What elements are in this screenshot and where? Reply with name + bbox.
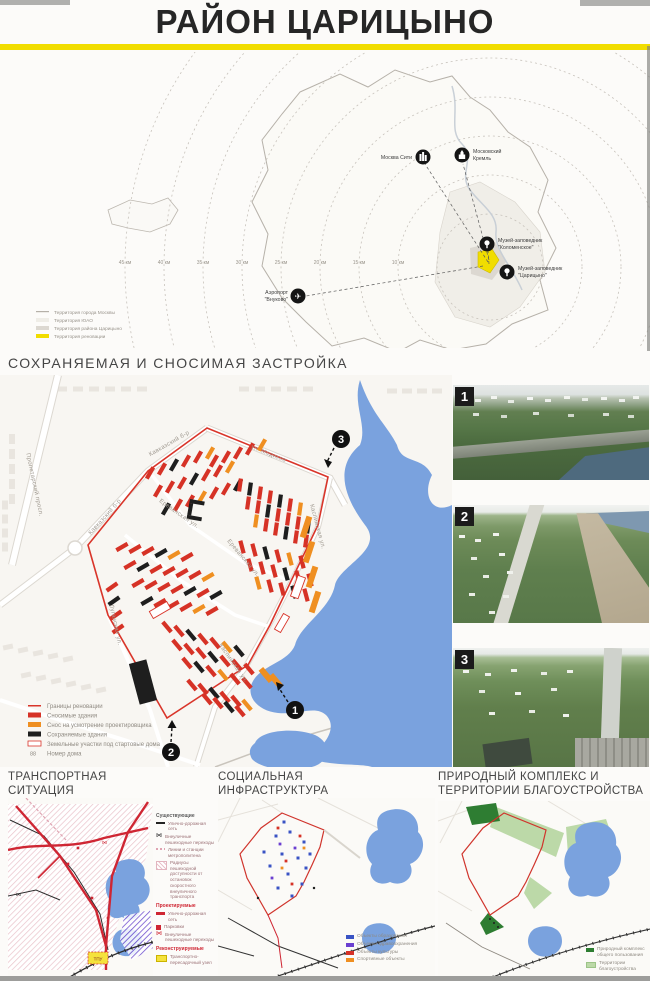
background-building xyxy=(137,387,147,392)
background-building xyxy=(2,501,8,510)
background-building xyxy=(432,389,442,394)
poi-label: Московский xyxy=(473,148,502,155)
facility-dot xyxy=(297,857,300,860)
nature-map-block: Природный комплекс общего пользования Те… xyxy=(438,801,650,978)
background-building xyxy=(9,479,15,489)
nature-title-line1: ПРИРОДНЫЙ КОМПЛЕКС И xyxy=(438,770,650,784)
legend-header: Существующие xyxy=(156,813,216,819)
legend-header: Реконструируемые xyxy=(156,946,216,952)
photo-1: 1 xyxy=(453,385,649,480)
yellow-divider xyxy=(0,44,650,50)
legend-label: Границы реновации xyxy=(47,704,103,710)
facility-dot xyxy=(257,897,259,899)
pond-lower xyxy=(528,926,562,956)
facility-dot xyxy=(303,847,306,850)
sport-swatch xyxy=(346,958,354,962)
facility-dot xyxy=(77,847,80,850)
poi-label: Аэропорт xyxy=(265,290,288,296)
background-building xyxy=(89,387,99,392)
legend-label: Спортивные объекты xyxy=(357,957,405,963)
background-building xyxy=(73,387,83,392)
legend-label: Транспортно-пересадочный узел xyxy=(170,954,216,965)
background-building xyxy=(255,387,265,392)
legend-label: Объекты образования xyxy=(357,934,407,940)
facility-dot xyxy=(303,841,306,844)
facility-dot xyxy=(291,895,294,898)
legend-label: Внеуличные пешеходные переходы xyxy=(165,834,216,845)
facility-dot xyxy=(277,887,280,890)
background-building xyxy=(271,387,281,392)
photo-edge xyxy=(0,976,650,981)
improvement-swatch xyxy=(586,962,596,968)
background-building xyxy=(303,387,313,392)
facility-dot xyxy=(277,827,280,830)
facility-dot xyxy=(283,821,286,824)
distance-label: 10 км xyxy=(392,260,405,266)
facility-dot xyxy=(269,865,272,868)
crossing-icon: ⋈ xyxy=(102,840,107,846)
nature-title-line2: ТЕРРИТОРИИ БЛАГОУСТРОЙСТВА xyxy=(438,784,650,798)
poi-label: Музей-заповедник xyxy=(518,265,563,272)
facility-dot xyxy=(271,877,274,880)
poi-label: "Коломенское" xyxy=(498,245,534,251)
distance-label: 30 км xyxy=(236,260,249,266)
facility-dot xyxy=(289,831,292,834)
distance-label: 40 км xyxy=(158,260,171,266)
social-map-block: Объекты образования Объекты здравоохране… xyxy=(218,798,435,978)
facility-dot xyxy=(275,835,278,838)
road-swatch xyxy=(156,822,165,825)
photo-3: 3 xyxy=(453,648,649,767)
crossing-icon: ⋈ xyxy=(156,834,162,839)
background-building xyxy=(417,389,427,394)
facility-dot xyxy=(67,863,70,866)
crossing-icon: ⋈ xyxy=(16,892,21,898)
facility-dot xyxy=(291,883,294,886)
house-number-swatch: 88 xyxy=(30,752,36,758)
building-specks xyxy=(463,670,469,673)
facility-dot xyxy=(285,860,288,863)
social-legend: Объекты образования Объекты здравоохране… xyxy=(346,934,432,965)
background-building xyxy=(387,389,397,394)
background-building xyxy=(121,387,131,392)
parking-swatch xyxy=(156,925,161,930)
facility-dot xyxy=(313,887,315,889)
tpu-swatch xyxy=(156,955,167,962)
road-swatch xyxy=(156,912,165,915)
legend-label: Природный комплекс общего пользования xyxy=(597,947,648,959)
facility-dot xyxy=(263,851,266,854)
background-building xyxy=(239,387,249,392)
legend-label: Внеуличные пешеходные переходы xyxy=(165,932,216,943)
transport-title: ТРАНСПОРТНАЯ СИТУАЦИЯ xyxy=(8,770,208,798)
radius-swatch xyxy=(156,861,167,870)
background-building xyxy=(287,387,297,392)
facility-dot xyxy=(281,853,284,856)
legend-label: Объекты здравоохранения xyxy=(357,942,417,948)
legend-label: Снос на усмотрение проектировщика xyxy=(47,723,152,729)
nature-complex-swatch xyxy=(586,948,594,952)
poi-label: Музей-заповедник xyxy=(498,237,543,244)
dark-lot xyxy=(483,738,533,767)
legend-label: Радиусы пешеходной доступности от остано… xyxy=(170,860,216,900)
tpu-label: ТПУ xyxy=(94,957,103,962)
photo-2-badge: 2 xyxy=(455,507,474,526)
parking-area xyxy=(575,738,649,767)
social-title: СОЦИАЛЬНАЯ ИНФРАСТРУКТУРА xyxy=(218,770,428,798)
facility-dot xyxy=(287,873,290,876)
legend-label: Улично-дорожная сеть xyxy=(168,911,216,922)
background-building xyxy=(9,434,15,444)
photo-2: 2 xyxy=(453,505,649,623)
nature-title: ПРИРОДНЫЙ КОМПЛЕКС И ТЕРРИТОРИИ БЛАГОУСТ… xyxy=(438,770,650,798)
distance-label: 20 км xyxy=(314,260,327,266)
legend-label: Территории благоустройства xyxy=(599,961,648,973)
facility-dot xyxy=(281,867,284,870)
background-building xyxy=(105,387,115,392)
poi-label: Москва Сити xyxy=(381,155,412,161)
distance-label: 15 км xyxy=(353,260,366,266)
background-building xyxy=(9,494,15,504)
transport-map: ⋈ ⋈ ТПУ xyxy=(8,798,153,978)
facility-dot xyxy=(294,847,297,850)
legend-label: Сносимые здания xyxy=(47,714,97,720)
distance-label: 45 км xyxy=(119,260,132,266)
facility-dot xyxy=(107,917,110,920)
background-building xyxy=(9,449,15,459)
legend-label: Территория реновации xyxy=(54,334,106,340)
transport-map-block: ⋈ ⋈ ТПУ Существующие Улично-дорожная сет… xyxy=(8,798,215,978)
health-swatch xyxy=(346,943,354,947)
legend-label: Территория района Царицыно xyxy=(54,325,122,332)
legend-label: Парковки xyxy=(164,924,184,930)
legend-label: Территория ЮАО xyxy=(54,318,93,324)
poi-label: "Внуково" xyxy=(265,297,289,303)
distance-label: 25 км xyxy=(275,260,288,266)
section-title-demolition: СОХРАНЯЕМАЯ И СНОСИМАЯ ЗАСТРОЙКА xyxy=(8,355,348,371)
marker-2: 2 xyxy=(168,747,174,759)
facility-dot xyxy=(279,843,282,846)
background-building xyxy=(2,515,8,524)
nature-legend: Природный комплекс общего пользования Те… xyxy=(586,947,648,975)
overview-map: 45 км 40 км 35 км 30 км 25 км 20 км 15 к… xyxy=(0,52,650,348)
transport-title-line2: СИТУАЦИЯ xyxy=(8,784,208,798)
background-building xyxy=(9,464,15,474)
facility-dot xyxy=(305,867,308,870)
distance-label: 35 км xyxy=(197,260,210,266)
crossing-icon: ⋈ xyxy=(156,932,162,937)
legend-header: Проектируемые xyxy=(156,903,216,909)
marker-1: 1 xyxy=(292,705,298,717)
facility-dot xyxy=(299,835,302,838)
poi-label: Кремль xyxy=(473,156,491,162)
building-specks xyxy=(473,413,479,416)
facility-dot xyxy=(301,883,304,886)
photo-3-badge: 3 xyxy=(455,650,474,669)
photo-1-badge: 1 xyxy=(455,387,474,406)
airplane-icon: ✈ xyxy=(295,292,302,301)
background-building xyxy=(2,529,8,538)
legend-label: Территория города Москвы xyxy=(54,310,116,316)
transport-title-line1: ТРАНСПОРТНАЯ xyxy=(8,770,208,784)
legend-label: Линии и станции метрополитена xyxy=(168,847,216,858)
demolition-map: Пролетарский просп. Кавказский б-р Кавка… xyxy=(0,375,452,767)
social-title-line1: СОЦИАЛЬНАЯ xyxy=(218,770,428,784)
culture-swatch xyxy=(346,951,354,955)
facility-dot xyxy=(309,853,312,856)
education-swatch xyxy=(346,935,354,939)
background-building xyxy=(402,389,412,394)
background-building xyxy=(2,543,8,552)
legend-label: Улично-дорожная сеть xyxy=(168,821,216,832)
social-title-line2: ИНФРАСТРУКТУРА xyxy=(218,784,428,798)
building-specks xyxy=(459,535,465,538)
poi-label: "Царицыно" xyxy=(518,273,547,279)
legend-label: Объекты культуры xyxy=(357,950,398,956)
legend-label: Сохраняемые здания xyxy=(47,733,107,739)
legend-label: Земельные участки под стартовые дома xyxy=(47,742,161,748)
transport-legend: Существующие Улично-дорожная сеть ⋈Внеул… xyxy=(156,810,216,967)
metro-swatch xyxy=(156,848,165,850)
facility-dot xyxy=(91,897,94,900)
legend-label: Номер дома xyxy=(47,752,82,758)
marker-3: 3 xyxy=(338,434,344,446)
poster-title: РАЙОН ЦАРИЦЫНО xyxy=(0,3,650,41)
road-band xyxy=(491,505,545,623)
poster: РАЙОН ЦАРИЦЫНО 45 км xyxy=(0,0,650,981)
